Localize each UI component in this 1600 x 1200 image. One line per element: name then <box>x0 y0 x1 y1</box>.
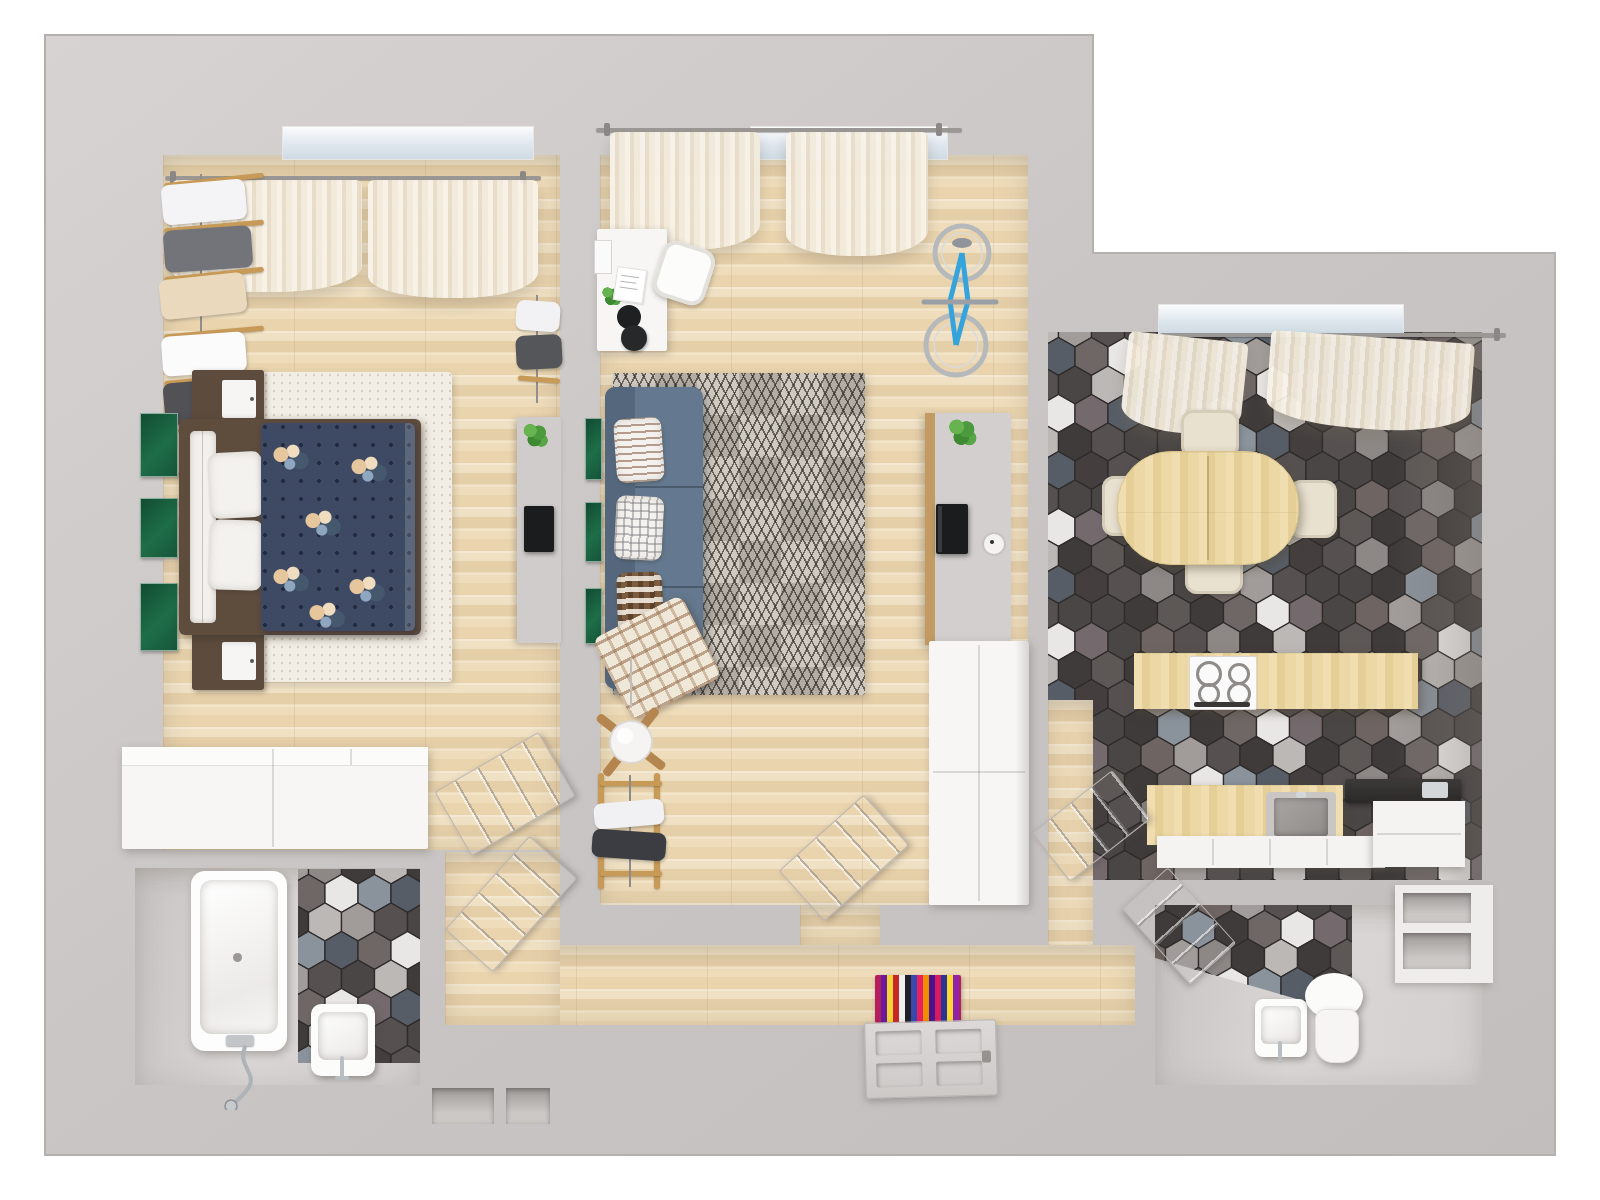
kitchen-window <box>1158 304 1404 334</box>
bedroom-wall-art-1 <box>140 413 178 477</box>
shower-hose <box>215 1035 285 1110</box>
kitchen-right-cabinet <box>1373 801 1465 867</box>
bed-pillow-1 <box>207 451 264 520</box>
living-rod-bracket-right <box>936 123 942 136</box>
bedroom-wardrobe <box>122 747 428 849</box>
desk-lamp-base <box>621 325 647 351</box>
drying-rack <box>592 773 668 889</box>
tall-white-cabinet <box>929 641 1029 905</box>
entry-door <box>864 1019 998 1098</box>
living-wall-art-2 <box>585 502 602 562</box>
wall-niche-1 <box>432 1088 494 1124</box>
living-wall-art-1 <box>585 418 602 480</box>
dining-table <box>1117 451 1299 565</box>
bed-duvet <box>261 423 415 631</box>
bathroom-sink <box>311 1004 375 1076</box>
wc-shelf-unit <box>1395 885 1493 983</box>
cooktop-counter <box>1134 653 1418 709</box>
bedroom-wall-art-2 <box>140 498 178 558</box>
kitchen-sink <box>1266 792 1336 842</box>
living-doorway-threshold <box>800 905 880 945</box>
desk-leaning-frame <box>594 240 612 274</box>
kitchen-drawer-front <box>1157 836 1385 868</box>
bedroom-wall-art-3 <box>140 583 178 651</box>
bedroom-window <box>282 126 534 160</box>
hall-rug <box>875 975 961 1023</box>
wc-toilet-bowl <box>1315 1009 1359 1063</box>
console-speaker <box>982 532 1006 556</box>
desk-papers <box>613 266 647 304</box>
living-curtain-right <box>786 132 928 256</box>
living-rod-bracket-left <box>604 123 610 136</box>
sofa-pillow-2 <box>613 495 664 561</box>
nightstand-bottom <box>192 632 264 690</box>
ceiling-fan <box>588 650 674 780</box>
bed-pillow-2 <box>208 519 264 591</box>
wall-bike <box>908 205 1004 380</box>
gas-cooktop <box>1189 656 1257 710</box>
kitchen-rod-bracket <box>1494 328 1500 341</box>
sofa-pillow-1 <box>613 416 665 483</box>
bedroom-tv <box>524 506 554 552</box>
bedroom-dresser-plant <box>519 420 551 450</box>
wall-niche-2 <box>506 1088 550 1124</box>
bathtub <box>191 871 287 1051</box>
console-plant <box>944 415 980 449</box>
bedroom-rack-right <box>516 293 562 405</box>
wc-sink <box>1255 999 1307 1057</box>
entry-door-handle <box>982 1050 991 1062</box>
bedroom-curtain-right <box>368 180 538 298</box>
apartment-floorplan-render <box>0 0 1600 1200</box>
kitchen-toaster <box>1422 782 1448 798</box>
living-tv <box>936 504 968 554</box>
